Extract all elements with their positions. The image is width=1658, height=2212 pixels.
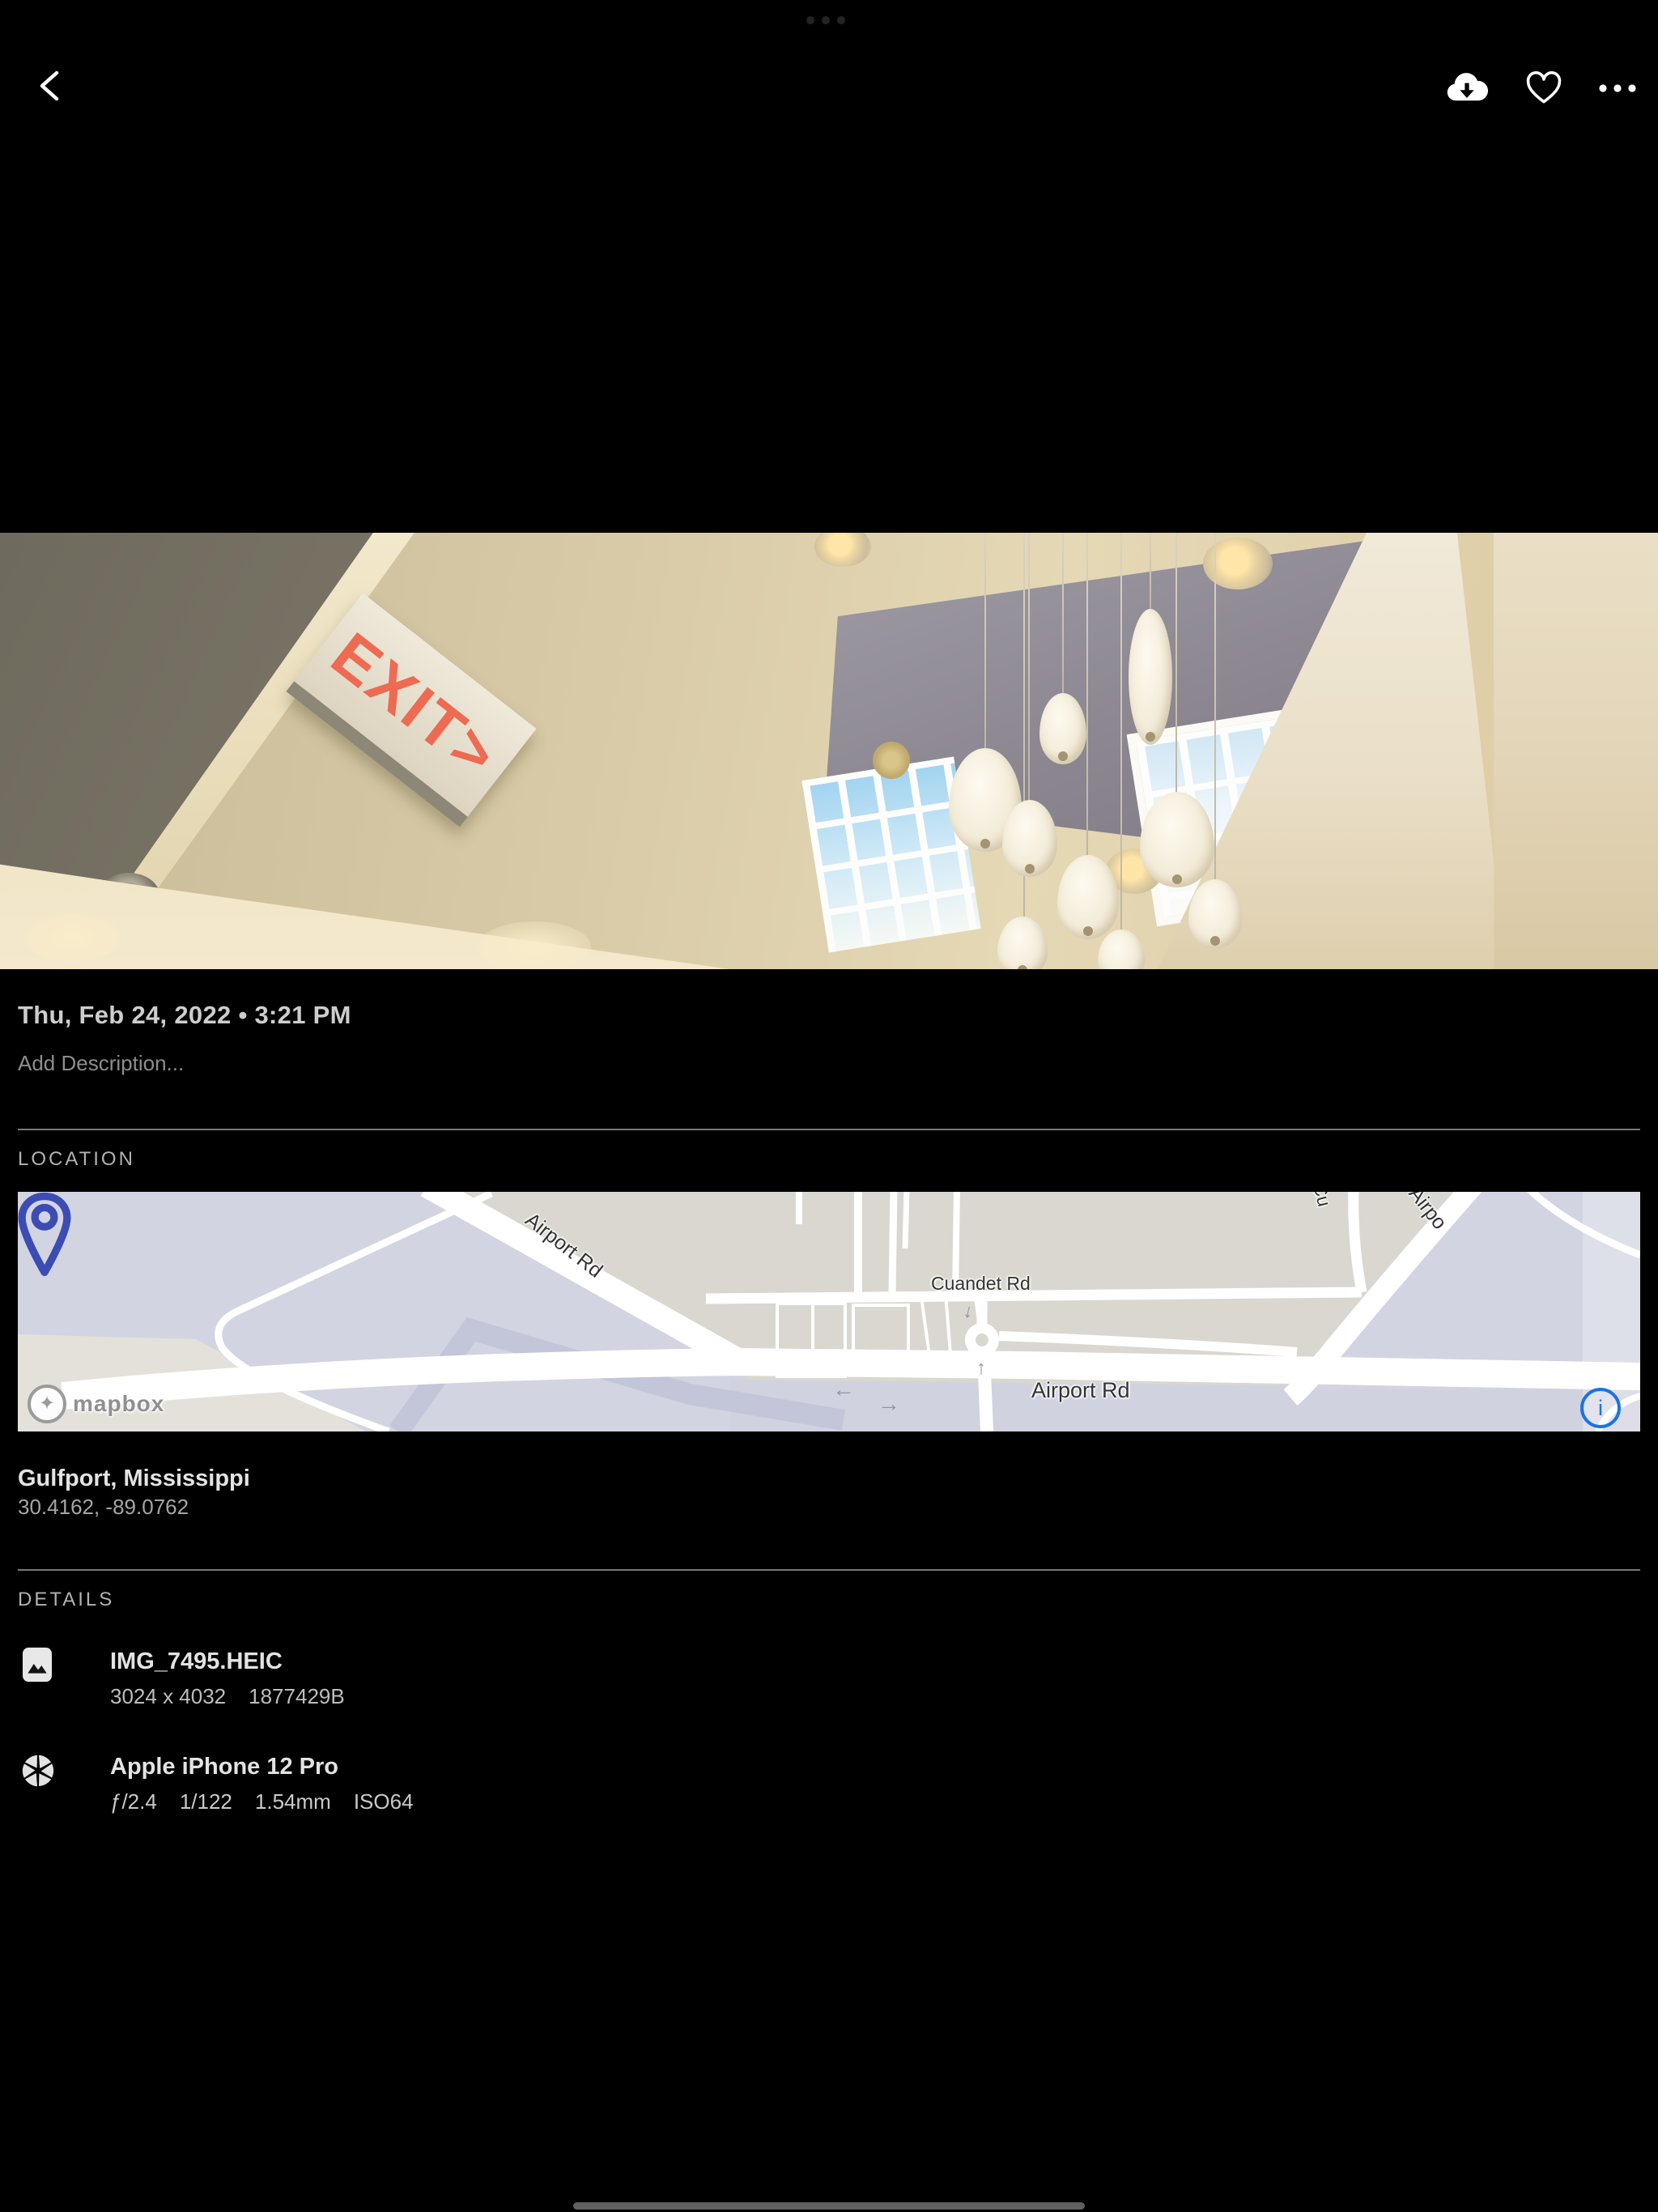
photo-ceiling-fixture — [873, 742, 910, 779]
map-label-cuandet-rd: Cuandet Rd — [931, 1273, 1031, 1295]
camera-meta: ƒ/2.41/1221.54mmISO64 — [110, 1789, 436, 1814]
mapbox-star-glyph: ✦ — [39, 1394, 55, 1414]
map-arrow-right: → — [878, 1391, 900, 1417]
map-pin-icon — [18, 1192, 71, 1279]
description-field[interactable]: Add Description... — [18, 1051, 184, 1076]
location-place: Gulfport, Mississippi — [18, 1465, 250, 1492]
location-map[interactable]: Airport Rd Cuandet Rd Airport Rd Cu Airp… — [18, 1192, 1640, 1431]
photo-exit-sign-text: EXIT> — [318, 618, 512, 793]
photo-lamp-wire — [1028, 533, 1030, 802]
image-file-icon — [23, 1647, 52, 1682]
camera-name: Apple iPhone 12 Pro — [110, 1754, 338, 1780]
home-indicator[interactable] — [573, 2202, 1085, 2210]
photo-wall-glow — [478, 921, 591, 969]
file-name: IMG_7495.HEIC — [110, 1648, 283, 1675]
photo-pendant-lamp — [1098, 929, 1145, 969]
photo-lamp-wire — [984, 533, 986, 750]
more-options-button[interactable] — [1596, 79, 1639, 97]
map-label-airport-rd: Airport Rd — [1031, 1378, 1130, 1403]
map-arrow-up: ↑ — [976, 1357, 986, 1380]
camera-shutter: 1/122 — [180, 1789, 232, 1814]
file-size: 1877429B — [249, 1684, 345, 1708]
photo[interactable]: EXIT> — [0, 533, 1658, 969]
photo-wall-glow — [24, 913, 121, 962]
chevron-left-icon — [32, 66, 71, 105]
file-row — [23, 1647, 52, 1687]
camera-iso: ISO64 — [354, 1789, 414, 1814]
photo-lamp-wire — [1214, 533, 1216, 881]
photo-pendant-lamp — [997, 917, 1048, 969]
aperture-icon — [19, 1752, 57, 1789]
map-canvas — [18, 1192, 1640, 1431]
camera-aperture: ƒ/2.4 — [110, 1789, 157, 1814]
photo-lamp-wire — [1086, 533, 1088, 857]
photo-recessed-light — [1203, 538, 1273, 589]
photo-lamp-wire — [1150, 533, 1151, 610]
mapbox-logo-icon: ✦ — [28, 1385, 66, 1423]
download-button[interactable] — [1446, 71, 1488, 104]
mapbox-attribution[interactable]: ✦ mapbox — [28, 1385, 164, 1423]
info-icon: i — [1598, 1396, 1603, 1421]
photo-lamp-wire — [1175, 533, 1177, 793]
map-info-button[interactable]: i — [1580, 1388, 1621, 1428]
divider — [18, 1569, 1640, 1571]
cloud-download-icon — [1446, 71, 1488, 104]
photo-pendant-lamp — [1129, 609, 1172, 745]
divider — [18, 1129, 1640, 1130]
back-button[interactable] — [32, 66, 71, 105]
file-dimensions: 3024 x 4032 — [110, 1684, 226, 1708]
photo-lamp-wire — [1120, 533, 1122, 931]
photo-right-wall — [1494, 533, 1658, 969]
photo-recessed-light — [814, 533, 871, 567]
location-coordinates: 30.4162, -89.0762 — [18, 1495, 189, 1520]
photo-lamp-wire — [1062, 533, 1064, 695]
map-arrow-left: ← — [832, 1376, 855, 1402]
photo-datetime: Thu, Feb 24, 2022 • 3:21 PM — [18, 1001, 351, 1030]
ellipsis-icon — [1596, 79, 1639, 97]
camera-row — [19, 1752, 57, 1793]
photo-detail-screen: { "toolbar": { "back": "back", "download… — [0, 0, 1658, 2212]
camera-focal-length: 1.54mm — [255, 1789, 331, 1814]
location-section-label: LOCATION — [18, 1148, 135, 1171]
favorite-button[interactable] — [1525, 71, 1562, 105]
multitask-indicator-dots — [806, 16, 845, 24]
mapbox-wordmark: mapbox — [73, 1391, 164, 1417]
details-section-label: DETAILS — [18, 1589, 114, 1611]
heart-icon — [1525, 71, 1562, 105]
file-meta: 3024 x 40321877429B — [110, 1684, 368, 1709]
